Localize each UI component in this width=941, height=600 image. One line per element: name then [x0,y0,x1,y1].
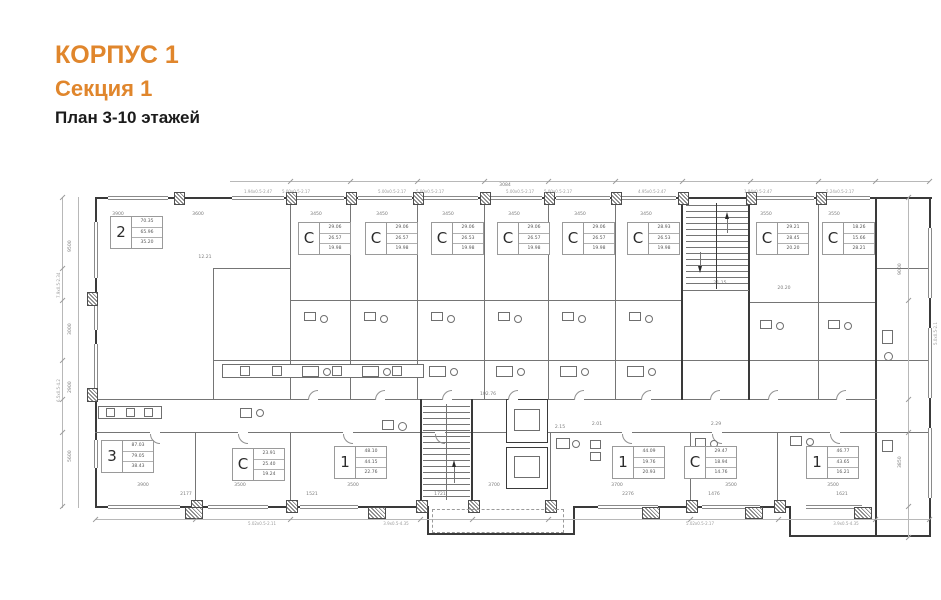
washbasin [447,315,455,323]
apartment-area-value: 20.93 [634,468,664,478]
window [300,505,358,509]
room-dimension: 2.01 [592,422,602,427]
apartment-area-value: 25.40 [254,460,284,471]
apartment-type: 1 [807,447,828,478]
window [94,222,98,278]
dimension-label: 3900 [137,483,149,488]
stair-arrow-stem [454,467,455,483]
apartment-area-value: 19.98 [649,244,679,254]
stair-arrow-stem [700,252,701,266]
apartment-type: С [432,223,453,254]
apartment-area-value: 18.26 [844,223,874,234]
appliance [106,408,115,417]
stair-arrow-up [725,212,729,219]
sink [648,368,656,376]
apartment-label-apt-2: 270.3565.9635.20 [110,216,163,249]
dimension-label: 9500 [68,240,73,252]
apartment-type: С [628,223,649,254]
stair-arrow-up [452,460,456,467]
stair-divider [716,203,717,289]
appliance [272,366,282,376]
dimension-label: 1476 [708,492,720,497]
apartment-area-value: 26.57 [519,234,549,245]
apartment-area-value: 26.57 [320,234,350,245]
pylon [678,192,689,205]
room-dimension: 21.15 [713,281,726,286]
dimension-label: 3550 [760,212,772,217]
sink [581,368,589,376]
door-arc [641,390,651,400]
wc [498,312,510,321]
pylon [87,388,98,402]
wall [877,268,929,269]
door-arc [710,390,720,400]
apartment-area-value: 70.35 [132,217,162,228]
window-spec-label: 7.9х0.5-2.34 [56,273,61,298]
appliance [332,366,342,376]
washbasin [320,315,328,323]
footing [368,507,386,519]
apartment-area-value: 44.15 [356,458,386,469]
apartment-type: 1 [335,447,356,478]
dimension-label: 3550 [828,212,840,217]
kitchen-unit [302,366,319,377]
apartment-area-value: 29.06 [320,223,350,234]
wall [877,432,929,433]
dimension-label: 3450 [640,212,652,217]
apartment-areas: 29.0626.5319.98 [453,223,483,254]
window [490,196,542,200]
window [94,344,98,388]
footing [854,507,872,519]
kitchen-unit [560,366,577,377]
apartment-area-value: 29.47 [706,447,736,458]
apartment-area-value: 35.20 [132,238,162,248]
washbasin [884,352,893,361]
apartment-area-value: 29.06 [584,223,614,234]
door-arc [836,390,846,400]
wc [590,440,601,449]
door-arc [508,390,518,400]
apartment-area-value: 87.03 [123,441,153,452]
apartment-area-value: 28.21 [844,244,874,254]
window [108,196,168,200]
window-spec-label: 3.9х0.5-4.35 [383,521,408,526]
pylon [774,500,786,513]
room-dimension: 3084 [499,183,511,188]
elevator-car [514,456,540,478]
apartment-areas: 48.1044.1522.76 [356,447,386,478]
wall [683,290,749,291]
wall [789,506,791,537]
apartment-area-value: 19.98 [320,244,350,254]
apartment-area-value: 29.21 [778,223,808,234]
dimension-label: 1521 [306,492,318,497]
footing [745,507,763,519]
appliance [144,408,153,417]
apartment-areas: 44.0919.7620.93 [634,447,664,478]
dimension-line [78,197,79,508]
apartment-type: С [563,223,584,254]
dimension-label: 3850 [898,456,903,468]
window [108,505,180,509]
window-spec-label: 1.94х0.5-2.47 [744,189,772,194]
wall [681,197,683,400]
window-spec-label: 3.9х0.5-4.35 [833,521,858,526]
window [622,196,676,200]
apartment-label-apt-3: 387.0379.0538.43 [101,440,154,473]
window [754,196,814,200]
entrance-canopy [432,509,564,533]
elevator-car [514,409,540,431]
wc [382,420,394,430]
apartment-type: 1 [613,447,634,478]
window [358,196,412,200]
apartment-area-value: 29.06 [387,223,417,234]
dimension-label: 3500 [725,483,737,488]
pylon [611,192,622,205]
window [928,328,932,398]
dimension-label: 3450 [310,212,322,217]
apartment-area-value: 79.05 [123,452,153,463]
apartment-area-value: 22.76 [356,468,386,478]
wall [213,268,291,269]
apartment-type: С [685,447,706,478]
kitchen-unit [429,366,446,377]
apartment-area-value: 19.76 [634,458,664,469]
apartment-area-value: 26.57 [584,234,614,245]
pylon [87,292,98,306]
wall [95,432,877,433]
wall [290,432,291,507]
apartment-type: С [757,223,778,254]
wc [304,312,316,321]
wall [484,197,485,400]
kitchen-unit [362,366,379,377]
dimension-line [908,197,909,537]
window [424,196,478,200]
door-arc [622,434,632,444]
window-spec-label: 5.24х0.5-2.17 [826,189,854,194]
footing [185,507,203,519]
apartment-area-value: 19.98 [453,244,483,254]
dimension-label: 3600 [192,212,204,217]
wall [213,268,214,400]
washbasin [806,438,814,446]
window [556,196,610,200]
sink [383,368,391,376]
window-spec-label: 5.00х0.5-2.17 [506,189,534,194]
washbasin [776,322,784,330]
wall [550,432,551,506]
apartment-label-apt-1c: 146.7743.6516.21 [806,446,859,479]
dimension-label: 2900 [68,381,73,393]
wc [562,312,574,321]
apartment-type: С [823,223,844,254]
pylon [416,500,428,513]
apartment-areas: 29.0626.5719.98 [519,223,549,254]
dimension-line [62,197,63,508]
wc [431,312,443,321]
apartment-area-value: 44.09 [634,447,664,458]
pylon [686,500,698,513]
dim-tick [927,178,933,184]
door-arc [442,390,452,400]
sink [323,368,331,376]
door-arc [308,390,318,400]
apartment-areas: 70.3565.9635.20 [132,217,162,248]
window [208,505,268,509]
window [928,228,932,298]
sink [572,440,580,448]
building-title: КОРПУС 1 [55,40,200,71]
dimension-label: 3500 [347,483,359,488]
washbasin [256,409,264,417]
window-spec-label: 6.5х0.5-4.2 [56,379,61,402]
stair-arrow-down [698,266,702,273]
apartment-area-value: 65.96 [132,228,162,239]
dimension-label: 3450 [574,212,586,217]
apartment-area-value: 23.91 [254,449,284,460]
pylon [346,192,357,205]
dim-tick [60,504,66,510]
washbasin [578,315,586,323]
wall [420,399,422,507]
apartment-area-value: 20.20 [778,244,808,254]
apartment-area-value: 18.94 [706,458,736,469]
apartment-label-studio-3: С29.0626.5319.98 [431,222,484,255]
dimension-label: 3450 [442,212,454,217]
room-dimension: 2.15 [555,425,565,430]
apartment-areas: 18.2615.6628.21 [844,223,874,254]
door-arc [830,434,840,444]
sink [450,368,458,376]
apartment-label-studio-1: С29.0626.5719.98 [298,222,351,255]
plan-header: КОРПУС 1 Секция 1 План 3-10 этажей [55,40,200,128]
wc [790,436,802,446]
door-arc [343,434,353,444]
wall [471,399,473,507]
apartment-area-value: 16.21 [828,468,858,478]
room-dimension: 20.20 [777,286,790,291]
window-spec-label: 5.02х0.5-2.11 [248,521,276,526]
footing [642,507,660,519]
stair-rail [446,404,447,500]
apartment-type: С [233,449,254,480]
window [296,196,344,200]
window-spec-label: 1.94х0.5-2.47 [244,189,272,194]
apartment-label-studio-7: С29.2128.4520.20 [756,222,809,255]
door-arc [238,434,248,444]
wall [875,197,877,537]
window-spec-label: 5.00х0.5-2.17 [544,189,572,194]
window-spec-label: 5.00х0.5-2.17 [416,189,444,194]
apartment-area-value: 38.43 [123,462,153,472]
room-dimension: 102.76 [480,392,496,397]
window [824,196,870,200]
dimension-label: 3000 [68,323,73,335]
appliance [126,408,135,417]
apartment-label-studio-5: С29.0626.5719.98 [562,222,615,255]
dimension-label: 3500 [827,483,839,488]
section-title: Секция 1 [55,75,200,103]
apartment-area-value: 19.98 [519,244,549,254]
apartment-area-value: 19.98 [387,244,417,254]
window-spec-label: 5.0х0.5-2.1 [933,322,938,345]
window-spec-label: 5.00х0.5-2.17 [282,189,310,194]
apartment-areas: 29.4718.9414.76 [706,447,736,478]
apartment-area-value: 26.53 [649,234,679,245]
apartment-label-studio-2: С29.0626.5719.98 [365,222,418,255]
page: КОРПУС 1 Секция 1 План 3-10 этажей 270.3… [0,0,941,600]
wall [615,197,616,400]
dimension-label: 2276 [622,492,634,497]
wc [882,330,893,344]
appliance [392,366,402,376]
apartment-type: 2 [111,217,132,248]
washbasin [645,315,653,323]
apartment-type: С [299,223,320,254]
apartment-label-studio-8: С18.2615.6628.21 [822,222,875,255]
apartment-label-apt-1b: 144.0919.7620.93 [612,446,665,479]
wc [590,452,601,461]
dimension-label: 2177 [180,492,192,497]
wall [195,432,196,507]
apartment-area-value: 14.76 [706,468,736,478]
stair-arrow-stem [727,219,728,233]
window [232,196,284,200]
dimension-label: 3700 [488,483,500,488]
wc [629,312,641,321]
room-dimension: 12.21 [198,255,211,260]
dimension-label: 3700 [611,483,623,488]
dimension-label: 3900 [112,212,124,217]
window [94,440,98,468]
apartment-area-value: 28.45 [778,234,808,245]
window-spec-label: 4.95х0.5-2.47 [638,189,666,194]
appliance [240,366,250,376]
apartment-area-value: 28.93 [649,223,679,234]
apartment-areas: 29.0626.5719.98 [320,223,350,254]
dimension-label: 5600 [68,450,73,462]
apartment-area-value: 46.77 [828,447,858,458]
wc [882,440,893,452]
apartment-label-studio-6: С28.9326.5319.98 [627,222,680,255]
wall [748,197,750,400]
wc [364,312,376,321]
door-arc [574,390,584,400]
dimension-label: 3450 [376,212,388,217]
washbasin [514,315,522,323]
apartment-label-studio-9: С23.9125.4019.24 [232,448,285,481]
washbasin [844,322,852,330]
apartment-areas: 29.0626.5719.98 [387,223,417,254]
apartment-area-value: 48.10 [356,447,386,458]
wall [877,360,929,361]
apartment-area-value: 26.57 [387,234,417,245]
dimension-label: 1721 [434,492,446,497]
apartment-label-apt-1a: 148.1044.1522.76 [334,446,387,479]
wall [777,432,778,506]
apartment-type: С [498,223,519,254]
apartment-area-value: 43.65 [828,458,858,469]
door-arc [375,390,385,400]
apartment-area-value: 29.06 [519,223,549,234]
apartment-areas: 28.9326.5319.98 [649,223,679,254]
wall [750,302,875,303]
apartment-areas: 23.9125.4019.24 [254,449,284,480]
wall [428,533,575,535]
room-dimension: 2.29 [711,422,721,427]
wall [818,197,819,399]
washbasin [380,315,388,323]
apartment-areas: 46.7743.6516.21 [828,447,858,478]
sink [398,422,407,431]
apartment-area-value: 19.98 [584,244,614,254]
wall [290,300,682,301]
pylon [174,192,185,205]
apartment-type: 3 [102,441,123,472]
apartment-label-studio-4: С29.0626.5719.98 [497,222,550,255]
wall [213,360,875,361]
wall [573,506,575,535]
dimension-label: 3500 [234,483,246,488]
apartment-label-studio-10: С29.4718.9414.76 [684,446,737,479]
apartment-area-value: 29.06 [453,223,483,234]
window-spec-label: 5.00х0.5-2.17 [378,189,406,194]
dimension-label: 1621 [836,492,848,497]
apartment-area-value: 26.53 [453,234,483,245]
kitchen-unit [556,438,570,449]
sink [517,368,525,376]
apartment-area-value: 19.24 [254,470,284,480]
kitchen-unit [627,366,644,377]
dimension-label: 3450 [508,212,520,217]
wc [828,320,840,329]
pylon [286,500,298,513]
apartment-areas: 29.0626.5719.98 [584,223,614,254]
apartment-type: С [366,223,387,254]
window [928,428,932,498]
apartment-area-value: 15.66 [844,234,874,245]
dimension-label: 9000 [898,263,903,275]
dimension-line [230,181,930,182]
wc [760,320,772,329]
apartment-areas: 87.0379.0538.43 [123,441,153,472]
plan-title: План 3-10 этажей [55,107,200,128]
window-spec-label: 5.02х0.5-2.17 [686,521,714,526]
wc [240,408,252,418]
door-arc [768,390,778,400]
pylon [480,192,491,205]
apartment-areas: 29.2128.4520.20 [778,223,808,254]
kitchen-unit [496,366,513,377]
